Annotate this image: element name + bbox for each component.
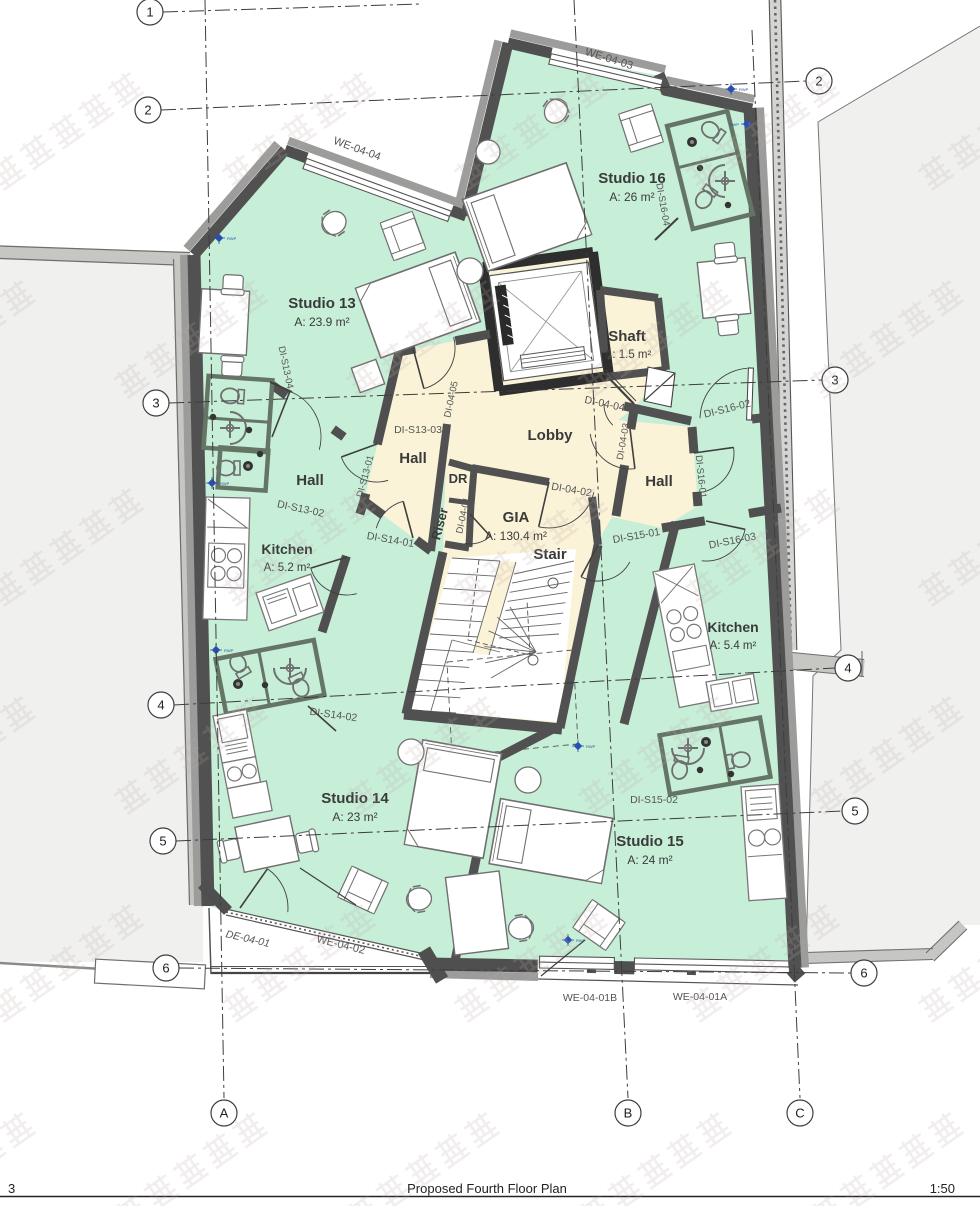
svg-text:6: 6 — [162, 961, 169, 976]
svg-text:RWP: RWP — [739, 87, 749, 92]
svg-text:DI-S15-02: DI-S15-02 — [630, 794, 678, 806]
svg-text:A: A — [220, 1106, 229, 1121]
svg-text:A: 26 m²: A: 26 m² — [609, 190, 654, 204]
svg-text:RWP: RWP — [227, 236, 237, 241]
svg-text:2: 2 — [144, 103, 151, 118]
svg-text:Hall: Hall — [399, 450, 427, 467]
svg-text:RWP: RWP — [220, 481, 230, 486]
svg-text:RWP: RWP — [730, 122, 740, 127]
svg-text:RWP: RWP — [224, 648, 234, 653]
svg-text:Studio 15: Studio 15 — [616, 833, 684, 850]
svg-text:A: 23 m²: A: 23 m² — [332, 810, 377, 824]
svg-text:Studio 13: Studio 13 — [288, 295, 356, 312]
svg-text:C: C — [795, 1106, 804, 1121]
svg-text:1:50: 1:50 — [930, 1181, 955, 1196]
svg-text:1: 1 — [146, 5, 153, 20]
svg-text:A: 5.4 m²: A: 5.4 m² — [710, 640, 757, 652]
svg-text:WE-04-01B: WE-04-01B — [563, 992, 617, 1004]
svg-text:RWP: RWP — [586, 744, 596, 749]
svg-text:B: B — [624, 1106, 633, 1121]
svg-text:Kitchen: Kitchen — [707, 619, 758, 635]
svg-text:A: 23.9 m²: A: 23.9 m² — [294, 315, 349, 329]
svg-text:DI-S13-03: DI-S13-03 — [394, 424, 442, 436]
svg-text:GIA: GIA — [503, 509, 530, 526]
svg-text:Proposed Fourth Floor Plan: Proposed Fourth Floor Plan — [407, 1181, 567, 1196]
svg-text:4: 4 — [844, 661, 851, 676]
svg-text:3: 3 — [152, 396, 159, 411]
svg-text:DR: DR — [449, 471, 468, 486]
svg-text:4: 4 — [157, 698, 164, 713]
svg-text:A: 24 m²: A: 24 m² — [627, 853, 672, 867]
svg-text:RWP: RWP — [576, 938, 586, 943]
svg-text:3: 3 — [8, 1181, 15, 1196]
svg-text:6: 6 — [860, 966, 867, 981]
svg-text:5: 5 — [851, 804, 858, 819]
svg-text:Hall: Hall — [645, 473, 673, 490]
svg-text:Lobby: Lobby — [528, 427, 574, 444]
svg-text:5: 5 — [159, 834, 166, 849]
svg-text:Hall: Hall — [296, 472, 324, 489]
